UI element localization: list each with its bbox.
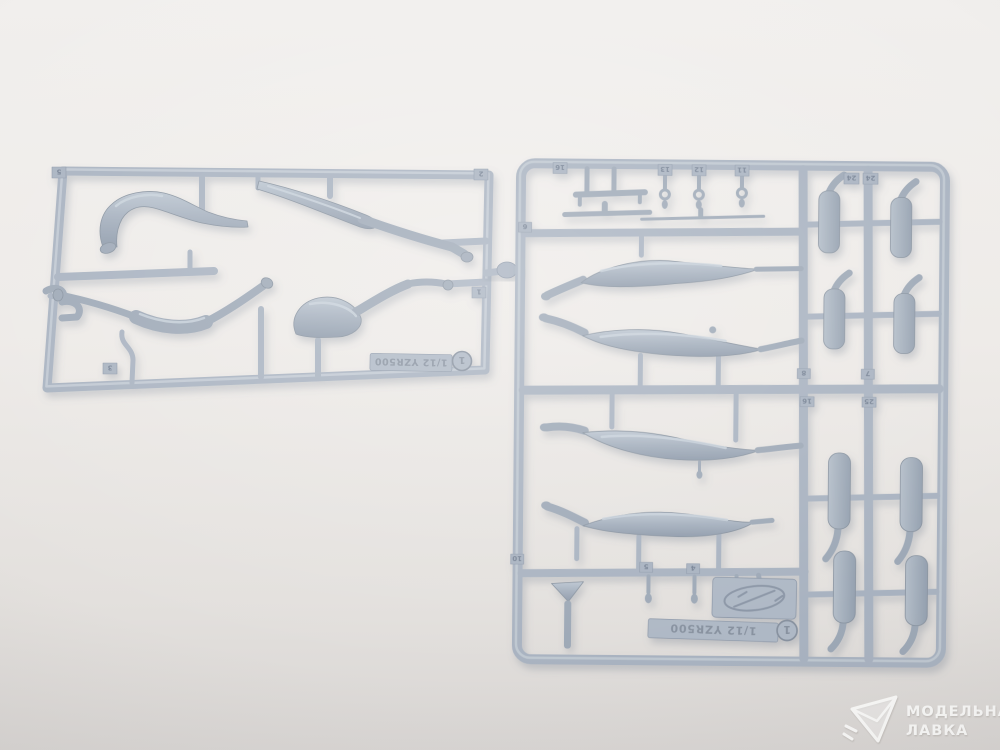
svg-text:2: 2 bbox=[478, 170, 483, 178]
silencer-nozzle bbox=[901, 181, 916, 199]
funnel-stem bbox=[564, 601, 571, 649]
mold-text-plate: 1/12 YZR500 bbox=[370, 353, 452, 371]
svg-text:6: 6 bbox=[522, 222, 527, 230]
pipe-flange bbox=[53, 289, 63, 301]
part-number-tag: 12 bbox=[692, 165, 706, 176]
watermark: МОДЕЛЬНАЯ ЛАВКА bbox=[844, 697, 1000, 741]
pipe-elbow bbox=[452, 247, 464, 254]
part-number-tag: 8 bbox=[797, 369, 810, 379]
part-number-tag: 3 bbox=[103, 363, 117, 374]
part-number-tag: 5 bbox=[640, 562, 653, 572]
chamber-tail bbox=[758, 445, 801, 450]
exhaust-pipe-part bbox=[60, 295, 136, 317]
exhaust-pipe-part bbox=[362, 219, 452, 247]
bracket-bar-part bbox=[576, 192, 645, 196]
part-number-tag: 1 bbox=[472, 287, 486, 298]
part-number-tag: 10 bbox=[511, 554, 524, 564]
svg-text:11: 11 bbox=[737, 166, 747, 174]
svg-text:16: 16 bbox=[555, 163, 565, 171]
svg-text:24: 24 bbox=[866, 174, 876, 182]
svg-text:5: 5 bbox=[56, 168, 61, 176]
exhaust-pipe-part bbox=[408, 282, 446, 284]
svg-text:7: 7 bbox=[865, 369, 870, 377]
manufacturer-logo-plaque bbox=[712, 577, 797, 619]
svg-text:10: 10 bbox=[512, 554, 522, 562]
left-sprue-tags: 5 2 1 3 bbox=[52, 167, 488, 374]
svg-text:4: 4 bbox=[691, 564, 696, 572]
drop-part bbox=[691, 594, 698, 604]
silencer-part bbox=[900, 457, 923, 531]
ring-part bbox=[694, 190, 703, 199]
chamber-header bbox=[547, 426, 585, 430]
svg-text:13: 13 bbox=[660, 165, 670, 173]
pipe-flange bbox=[461, 252, 473, 262]
silencer-tailpipe bbox=[898, 531, 910, 561]
silencer-part bbox=[905, 556, 928, 626]
gate-number-badge: 1 bbox=[777, 620, 797, 640]
silencer-nozzle bbox=[834, 273, 849, 291]
part-number-tag: 5 bbox=[52, 167, 66, 178]
chamber-tail bbox=[761, 340, 802, 349]
silencer-part bbox=[828, 453, 851, 529]
runner-rail bbox=[864, 170, 873, 659]
chamber-header bbox=[546, 318, 585, 332]
gate-number-badge: 1 bbox=[453, 352, 472, 371]
pipe-flange bbox=[443, 280, 453, 290]
silencer-part bbox=[824, 289, 846, 349]
part-number-tag: 2 bbox=[474, 169, 488, 180]
pipe-flange bbox=[539, 313, 549, 321]
part-number-tag: 24 bbox=[844, 173, 859, 184]
drop-part bbox=[739, 199, 745, 208]
part-number-tag: 24 bbox=[863, 173, 878, 184]
mold-text-plate: 1/12 YZR500 bbox=[648, 619, 779, 643]
funnel-part bbox=[551, 581, 583, 601]
svg-text:3: 3 bbox=[107, 364, 112, 372]
paper-plane-trail bbox=[844, 726, 856, 739]
svg-text:5: 5 bbox=[644, 562, 649, 570]
specular-highlight bbox=[268, 186, 360, 218]
silencer-tailpipe bbox=[903, 626, 915, 652]
ring-part bbox=[660, 190, 669, 199]
chamber-tail bbox=[756, 268, 801, 269]
runner-rail bbox=[523, 385, 939, 394]
z-support-runner bbox=[122, 332, 133, 383]
svg-text:12: 12 bbox=[694, 165, 704, 173]
silencer-parts-lower bbox=[825, 453, 929, 652]
chamber-header bbox=[547, 279, 583, 295]
runner-rail bbox=[525, 229, 804, 235]
silencer-tailpipe bbox=[831, 623, 843, 649]
svg-text:24: 24 bbox=[847, 174, 857, 182]
part-number-tag: 16 bbox=[800, 397, 814, 407]
svg-text:16: 16 bbox=[802, 397, 812, 405]
shop-logo-icon bbox=[844, 697, 896, 741]
svg-text:1: 1 bbox=[458, 354, 465, 365]
small-parts-row-top bbox=[565, 169, 764, 221]
shop-name-line2: ЛАВКА bbox=[906, 723, 968, 739]
part-number-tag: 25 bbox=[862, 397, 876, 407]
runner-rail bbox=[799, 170, 808, 659]
runner-rail bbox=[522, 569, 805, 575]
part-number-tag: 13 bbox=[658, 164, 672, 175]
expansion-chamber-parts bbox=[537, 232, 803, 573]
mold-scale-text: 1/12 YZR500 bbox=[374, 355, 447, 367]
chamber-tail bbox=[752, 520, 772, 522]
exhaust-pipe-part bbox=[356, 284, 408, 312]
part-number-tag: 16 bbox=[553, 162, 567, 173]
silencer-nozzle bbox=[904, 278, 919, 296]
chamber-header bbox=[547, 506, 585, 522]
silencer-part bbox=[818, 191, 840, 253]
silencer-part bbox=[890, 197, 912, 257]
svg-text:8: 8 bbox=[801, 369, 806, 377]
svg-text:25: 25 bbox=[864, 397, 874, 405]
silencer-nozzle bbox=[829, 175, 844, 193]
left-sprue: 5 2 1 3 1/12 YZR500 1 bbox=[46, 167, 489, 388]
part-number-tag: 11 bbox=[735, 165, 749, 176]
pipe-flange bbox=[541, 501, 551, 509]
exhaust-header-pipe-part bbox=[100, 191, 248, 247]
part-number-tag: 6 bbox=[519, 222, 532, 232]
drop-part bbox=[696, 471, 702, 479]
part-number-tag: 4 bbox=[687, 564, 700, 574]
product-photo: 5 2 1 3 1/12 YZR500 1 bbox=[0, 0, 1000, 750]
photo-canvas: 5 2 1 3 1/12 YZR500 1 bbox=[0, 0, 1000, 750]
connector-nub bbox=[497, 262, 517, 278]
drop-part bbox=[645, 593, 652, 603]
silencer-part bbox=[833, 551, 856, 623]
silencer-part bbox=[893, 293, 915, 353]
ring-part bbox=[737, 189, 746, 198]
chamber-knob bbox=[709, 326, 716, 333]
svg-text:1: 1 bbox=[476, 288, 481, 296]
part-number-tag: 7 bbox=[861, 369, 874, 379]
svg-text:1: 1 bbox=[783, 623, 791, 636]
shop-name-line1: МОДЕЛЬНАЯ bbox=[906, 704, 1000, 720]
exhaust-pipe-part bbox=[206, 286, 263, 322]
drop-part bbox=[662, 200, 668, 209]
right-sprue: 1/12 YZR500 1 16 13 12 11 bbox=[510, 162, 945, 663]
